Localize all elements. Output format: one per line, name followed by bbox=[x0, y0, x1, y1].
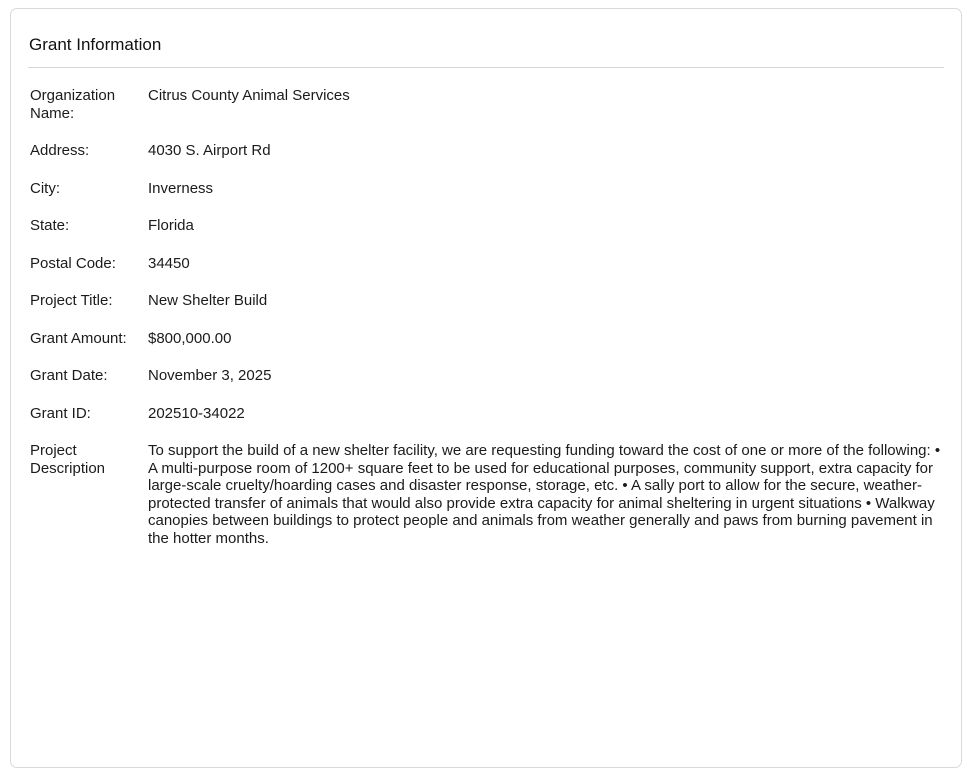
field-value: Citrus County Animal Services bbox=[148, 87, 944, 122]
field-label: Grant Date: bbox=[28, 367, 148, 385]
field-value: Florida bbox=[148, 217, 944, 235]
field-label: State: bbox=[28, 217, 148, 235]
field-label: Organization Name: bbox=[28, 87, 148, 122]
page-title: Grant Information bbox=[28, 35, 944, 55]
field-value: To support the build of a new shelter fa… bbox=[148, 442, 944, 547]
field-row-state: State: Florida bbox=[28, 207, 944, 245]
field-row-grant-amount: Grant Amount: $800,000.00 bbox=[28, 320, 944, 358]
field-row-postal-code: Postal Code: 34450 bbox=[28, 245, 944, 283]
field-row-grant-date: Grant Date: November 3, 2025 bbox=[28, 357, 944, 395]
field-label: Postal Code: bbox=[28, 255, 148, 273]
field-label: Grant ID: bbox=[28, 405, 148, 423]
field-value: 34450 bbox=[148, 255, 944, 273]
field-row-address: Address: 4030 S. Airport Rd bbox=[28, 132, 944, 170]
grant-fields: Organization Name: Citrus County Animal … bbox=[28, 77, 944, 557]
field-value: 4030 S. Airport Rd bbox=[148, 142, 944, 160]
field-value: $800,000.00 bbox=[148, 330, 944, 348]
field-row-grant-id: Grant ID: 202510-34022 bbox=[28, 395, 944, 433]
field-row-project-description: Project Description To support the build… bbox=[28, 432, 944, 557]
field-row-project-title: Project Title: New Shelter Build bbox=[28, 282, 944, 320]
field-label: Grant Amount: bbox=[28, 330, 148, 348]
grant-information-card: Grant Information Organization Name: Cit… bbox=[10, 8, 962, 768]
field-row-city: City: Inverness bbox=[28, 170, 944, 208]
field-label: Project Title: bbox=[28, 292, 148, 310]
field-label: City: bbox=[28, 180, 148, 198]
field-value: 202510-34022 bbox=[148, 405, 944, 423]
field-label: Project Description bbox=[28, 442, 148, 547]
field-value: New Shelter Build bbox=[148, 292, 944, 310]
field-label: Address: bbox=[28, 142, 148, 160]
title-divider bbox=[28, 67, 944, 68]
field-row-organization-name: Organization Name: Citrus County Animal … bbox=[28, 77, 944, 132]
field-value: November 3, 2025 bbox=[148, 367, 944, 385]
field-value: Inverness bbox=[148, 180, 944, 198]
